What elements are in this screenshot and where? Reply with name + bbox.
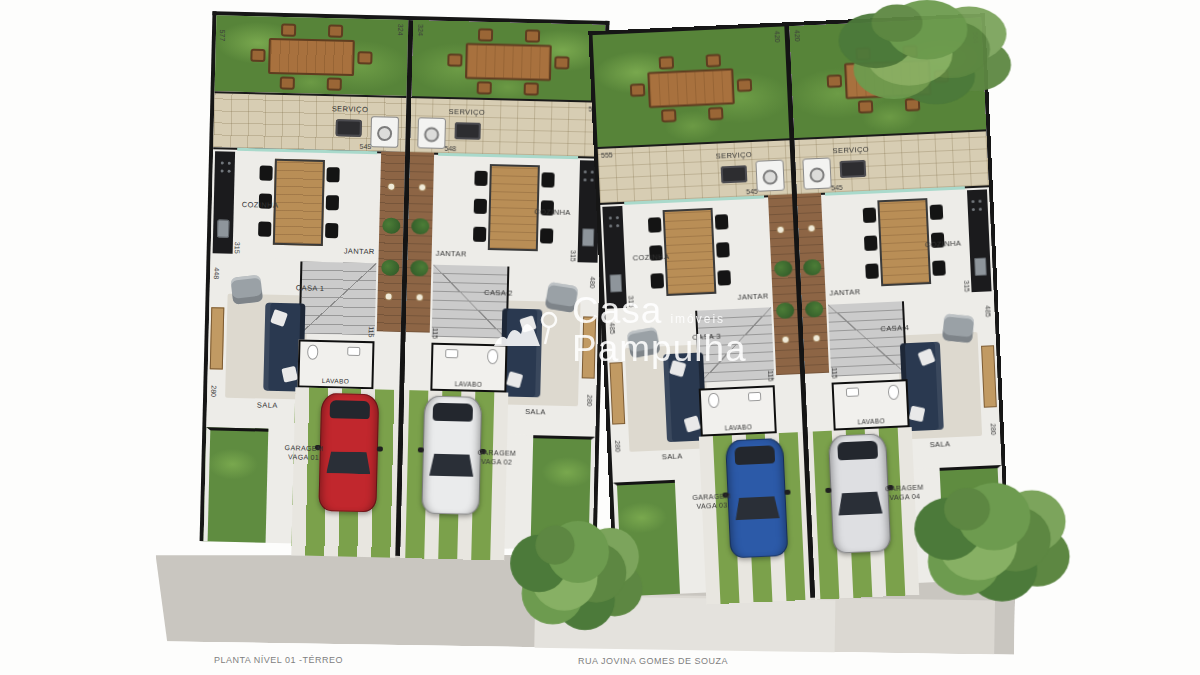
lavabo-bathroom: LAVABO 115 150 380 xyxy=(297,339,374,389)
garage-label: GARAGEM VAGA 04 xyxy=(870,482,939,504)
toilet-icon xyxy=(307,345,318,360)
casa-1-slot: 577 324 SERVIÇO 545 COZINHA xyxy=(204,15,409,546)
plant-icon xyxy=(803,259,822,276)
watermark-subtitle: imóveis xyxy=(670,313,725,325)
garden-lamp-icon xyxy=(777,227,783,233)
room-label-jantar: JANTAR xyxy=(436,249,467,259)
casa-rooms: 324 SERVIÇO 548 555 COZINHA xyxy=(401,20,606,551)
dimension-label: 115 xyxy=(831,367,838,378)
cooktop-icon xyxy=(591,171,594,174)
outdoor-chair xyxy=(357,51,372,64)
garage-driveway: GARAGEM VAGA 02 xyxy=(400,390,508,560)
outdoor-dining-table xyxy=(844,59,932,99)
backyard-garden: 324 xyxy=(412,20,606,101)
service-area: SERVIÇO 548 555 xyxy=(410,96,603,157)
garage-label: GARAGEM VAGA 01 xyxy=(270,443,338,464)
room-label-sala: SALA xyxy=(929,439,950,449)
unit-name-label: CASA 1 xyxy=(296,283,325,293)
plant-icon xyxy=(411,218,429,234)
dimension-label: 545 xyxy=(831,184,843,192)
outdoor-chair xyxy=(905,98,921,112)
plant-icon xyxy=(382,217,400,233)
dimension-label: 548 xyxy=(444,145,456,152)
plan-title-label: PLANTA NÍVEL 01 -TÉRREO xyxy=(214,655,343,665)
outdoor-chair xyxy=(827,74,843,88)
dimension-label: 564 xyxy=(972,32,980,44)
dining-table xyxy=(273,159,325,246)
garage-label: GARAGEM VAGA 02 xyxy=(462,447,530,468)
garden-lamp-icon xyxy=(808,225,814,231)
room-label-cozinha: COZINHA xyxy=(242,200,279,210)
car-rear-glass xyxy=(330,400,370,419)
sink-icon xyxy=(748,392,761,402)
washer-drum-icon xyxy=(424,127,439,142)
outdoor-chair xyxy=(858,100,874,114)
dining-table xyxy=(663,208,717,296)
room-label-sala: SALA xyxy=(662,451,683,461)
outdoor-dining-table xyxy=(268,38,355,76)
dimension-label: 420 xyxy=(774,31,782,43)
dining-chair xyxy=(541,172,554,187)
watermark-title-2: Pampulha xyxy=(572,330,747,368)
room-label-sala: SALA xyxy=(257,400,278,410)
dimension-label: 315 xyxy=(963,281,971,293)
laundry-tank-icon xyxy=(721,165,748,183)
pillow-icon xyxy=(917,348,935,366)
outdoor-chair xyxy=(659,56,675,70)
dimension-label: 577 xyxy=(219,29,226,41)
tree xyxy=(944,488,990,531)
washing-machine-icon xyxy=(370,116,399,148)
casa-rooms: 577 324 SERVIÇO 545 COZINHA xyxy=(204,15,409,546)
unit-name-label: CASA 4 xyxy=(880,323,909,333)
garage-label-line2: VAGA 01 xyxy=(270,452,338,463)
plant-icon xyxy=(410,260,428,276)
tree xyxy=(535,525,574,564)
washer-drum-icon xyxy=(809,167,825,183)
dimension-label: 280 xyxy=(586,394,593,406)
toilet-icon xyxy=(708,393,720,408)
cooktop-icon xyxy=(609,216,612,219)
dining-chair xyxy=(717,270,731,286)
dimension-label: 280 xyxy=(210,385,217,397)
kitchen: COZINHA JANTAR 315 xyxy=(211,147,406,262)
dimension-label: 545 xyxy=(746,188,758,196)
pillow-icon xyxy=(506,371,523,388)
outdoor-chair xyxy=(706,54,722,68)
dining-chair xyxy=(865,263,879,279)
car-rear-glass xyxy=(734,445,775,465)
room-label-lavabo: LAVABO xyxy=(702,422,774,432)
garage-driveway: GARAGEM VAGA 01 xyxy=(291,387,399,557)
room-label-servico: SERVIÇO xyxy=(449,107,486,117)
garage-driveway: GARAGEM VAGA 04 xyxy=(808,427,920,600)
dining-chair xyxy=(473,227,486,242)
outdoor-chair xyxy=(855,47,871,61)
dimension-label: 280 xyxy=(614,440,622,452)
dining-chair xyxy=(325,223,338,238)
dimension-label: 545 xyxy=(360,143,372,150)
laundry-tank-icon xyxy=(454,122,480,140)
dining-chair xyxy=(864,235,878,251)
dimension-label: 448 xyxy=(213,267,220,279)
dining-chair xyxy=(474,171,487,186)
dimension-label: 315 xyxy=(234,242,241,254)
sideboard xyxy=(981,345,997,408)
sidewalk-ramp xyxy=(535,596,836,653)
laundry-tank-icon xyxy=(336,119,362,137)
room-label-cozinha: COZINHA xyxy=(534,207,571,217)
staircase xyxy=(828,301,907,376)
outdoor-dining-table xyxy=(465,43,552,81)
garden-lamp-icon xyxy=(388,184,394,190)
sink-icon xyxy=(445,349,458,358)
room-label-jantar: JANTAR xyxy=(344,247,375,257)
garden-lamp-icon xyxy=(419,184,425,190)
dining-chair xyxy=(715,214,729,230)
plant-icon xyxy=(774,260,793,277)
kitchen-sink-icon xyxy=(217,219,229,237)
plant-icon xyxy=(805,301,824,318)
casa-2: 324 SERVIÇO 548 555 COZINHA xyxy=(401,20,606,551)
watermark: Casa imóveis Pampulha xyxy=(492,292,747,367)
room-label-servico: SERVIÇO xyxy=(716,150,753,161)
outdoor-chair xyxy=(554,56,569,69)
plant-icon xyxy=(776,302,795,319)
street-name-label: RUA JOVINA GOMES DE SOUZA xyxy=(578,656,728,666)
armchair xyxy=(230,275,263,305)
kitchen: COZINHA JANTAR 315 xyxy=(407,152,602,267)
pillow-icon xyxy=(684,415,701,432)
car-rear-glass xyxy=(433,403,473,422)
dimension-label: 115 xyxy=(432,328,439,339)
room-label-sala: SALA xyxy=(525,407,546,417)
pillow-icon xyxy=(270,309,288,327)
kitchen: COZINHA JANTAR 315 xyxy=(797,185,994,304)
room-label-cozinha: COZINHA xyxy=(632,252,669,263)
garage-driveway: GARAGEM VAGA 03 xyxy=(699,432,811,605)
dimension-label: 420 xyxy=(794,30,802,42)
dimension-label: 324 xyxy=(417,24,424,36)
washing-machine-icon xyxy=(802,157,831,189)
lavabo-bathroom: LAVABO 115 150 383 xyxy=(832,379,910,430)
outdoor-chair xyxy=(661,109,677,123)
dining-chair xyxy=(863,207,877,223)
outdoor-chair xyxy=(708,107,724,121)
lavabo-bathroom: LAVABO 115 150 383 xyxy=(699,385,777,436)
dining-chair xyxy=(540,228,553,243)
car-mirror-icon xyxy=(377,446,383,451)
garage-label-line2: VAGA 02 xyxy=(462,457,530,468)
laundry-tank-icon xyxy=(840,160,867,178)
service-area: SERVIÇO 545 xyxy=(213,91,406,152)
service-area: SERVIÇO 545 xyxy=(794,129,988,194)
dining-table xyxy=(488,164,540,251)
room-label-lavabo: LAVABO xyxy=(835,416,907,426)
kitchen-counter xyxy=(213,151,235,253)
plant-icon xyxy=(381,259,399,275)
outdoor-chair xyxy=(737,78,753,92)
kitchen-sink-icon xyxy=(974,257,987,276)
outdoor-chair xyxy=(281,23,296,36)
kitchen-counter xyxy=(967,189,992,292)
staircase xyxy=(299,261,377,335)
dining-chair xyxy=(474,199,487,214)
dining-chair xyxy=(930,204,944,220)
garage-label-line2: VAGA 04 xyxy=(871,491,939,504)
outdoor-chair xyxy=(902,45,918,59)
garden-lamp-icon xyxy=(417,294,423,300)
casa-2-slot: 324 SERVIÇO 548 555 COZINHA xyxy=(401,20,606,551)
car-mirror-icon xyxy=(825,488,831,493)
room-label-cozinha: COZINHA xyxy=(925,239,962,250)
washing-machine-icon xyxy=(417,117,446,149)
dining-chair xyxy=(650,273,664,289)
outdoor-chair xyxy=(478,28,493,41)
floor-plan-render: 577 324 SERVIÇO 545 COZINHA xyxy=(0,0,1200,675)
garden-lamp-icon xyxy=(782,337,788,343)
outdoor-chair xyxy=(933,69,949,83)
armchair xyxy=(942,313,974,343)
front-garden xyxy=(613,480,680,597)
dimension-label: 115 xyxy=(368,326,375,337)
watermark-text: Casa imóveis Pampulha xyxy=(572,292,747,367)
sink-icon xyxy=(846,387,859,397)
cooktop-icon xyxy=(978,200,981,203)
side-deck xyxy=(406,152,434,333)
dimension-label: 480 xyxy=(589,277,596,289)
car-mirror-icon xyxy=(784,490,790,495)
washer-drum-icon xyxy=(762,169,778,185)
sink-icon xyxy=(347,347,360,356)
garden-lamp-icon xyxy=(386,294,392,300)
dimension-label: 555 xyxy=(601,151,613,159)
outdoor-chair xyxy=(447,53,462,66)
dining-chair xyxy=(932,260,946,276)
dimension-label: 485 xyxy=(984,305,992,317)
front-garden xyxy=(204,427,269,542)
outdoor-chair xyxy=(524,82,539,95)
dining-chair xyxy=(716,242,730,258)
room-label-lavabo: LAVABO xyxy=(432,380,504,389)
tree xyxy=(872,4,923,41)
outdoor-dining-table xyxy=(647,68,735,108)
pillow-icon xyxy=(281,366,298,383)
dining-chair xyxy=(259,165,272,180)
dining-chair xyxy=(258,221,271,236)
room-label-lavabo: LAVABO xyxy=(299,376,371,385)
car-mirror-icon xyxy=(418,447,424,452)
room-label-servico: SERVIÇO xyxy=(332,104,369,114)
backyard-garden: 420 xyxy=(593,26,790,147)
dimension-label: 315 xyxy=(570,250,577,262)
casa-pampulha-logo-icon xyxy=(492,302,562,358)
pillow-icon xyxy=(909,406,925,422)
outdoor-chair xyxy=(525,29,540,42)
dining-chair xyxy=(648,217,662,233)
car-rear-glass xyxy=(837,441,878,461)
dimension-label: 115 xyxy=(767,370,774,381)
garage-label: GARAGEM VAGA 03 xyxy=(677,491,746,513)
outdoor-chair xyxy=(477,81,492,94)
outdoor-chair xyxy=(250,49,265,62)
outdoor-chair xyxy=(280,76,295,89)
dimension-label: 324 xyxy=(397,24,404,36)
washing-machine-icon xyxy=(755,160,784,192)
room-label-jantar: JANTAR xyxy=(829,287,860,297)
dining-chair xyxy=(326,167,339,182)
kitchen-sink-icon xyxy=(582,228,594,246)
watermark-title-1: Casa xyxy=(572,292,662,330)
outdoor-chair xyxy=(630,83,646,97)
room-label-servico: SERVIÇO xyxy=(833,145,870,156)
sideboard xyxy=(210,307,225,369)
outdoor-chair xyxy=(328,25,343,38)
dining-table xyxy=(877,198,931,286)
dimension-label: 280 xyxy=(990,423,998,435)
sideboard xyxy=(609,362,625,425)
casa-1: 577 324 SERVIÇO 545 COZINHA xyxy=(204,15,409,546)
service-area: SERVIÇO 545 555 xyxy=(598,138,792,203)
washer-drum-icon xyxy=(377,126,392,141)
outdoor-chair xyxy=(327,77,342,90)
backyard-garden: 577 324 xyxy=(215,15,409,96)
garden-lamp-icon xyxy=(813,335,819,341)
dining-chair xyxy=(326,195,339,210)
toilet-icon xyxy=(888,385,900,400)
cooktop-icon xyxy=(221,161,224,164)
building-block-left: 577 324 SERVIÇO 545 COZINHA xyxy=(200,11,610,551)
